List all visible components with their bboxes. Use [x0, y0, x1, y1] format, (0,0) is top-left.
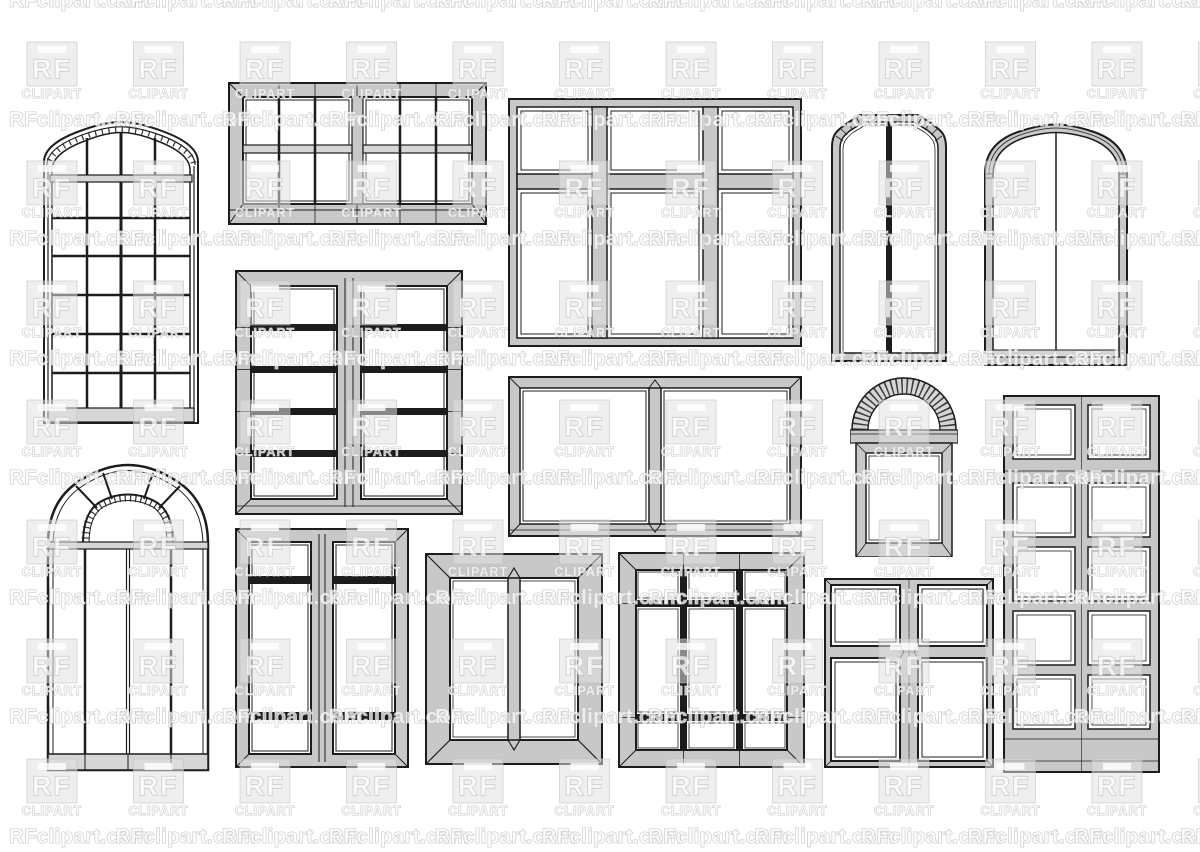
window-two-pane-picture-graphic	[508, 376, 802, 537]
logo-rf-text: RF	[352, 771, 392, 801]
logo-rf-text: RF	[458, 54, 498, 84]
logo-clipart-text: CLIPART	[235, 804, 295, 818]
logo-clipart-text: CLIPART	[1193, 565, 1200, 579]
logo-clipart-text: CLIPART	[1193, 804, 1200, 818]
logo-rf-text: RF	[458, 412, 498, 442]
logo-rf-text: RF	[458, 771, 498, 801]
logo-rf-text: RF	[565, 54, 605, 84]
window-chamfered-top-graphic	[830, 105, 948, 363]
logo-clipart-text: CLIPART	[128, 445, 188, 459]
rf-clipart-logo-watermark: RFCLIPART	[980, 42, 1040, 101]
logo-clipart-text: CLIPART	[874, 87, 934, 101]
window-thick-frame-two-pane-graphic	[425, 553, 603, 765]
logo-clipart-text: CLIPART	[661, 804, 721, 818]
site-watermark-text: RFclipart.com	[968, 825, 1109, 848]
logo-clipart-text: CLIPART	[22, 87, 82, 101]
logo-clipart-text: CLIPART	[980, 87, 1040, 101]
site-watermark-text: RFclipart.com	[1181, 108, 1200, 131]
logo-rf-text: RF	[1097, 54, 1137, 84]
logo-clipart-text: CLIPART	[554, 804, 614, 818]
rf-clipart-logo-watermark: RFCLIPART	[22, 42, 82, 101]
window-three-column-transom	[508, 98, 802, 352]
logo-clipart-text: CLIPART	[22, 804, 82, 818]
window-thick-frame-two-pane	[425, 553, 603, 770]
rf-clipart-logo-watermark: RFCLIPART	[554, 42, 614, 101]
site-watermark-text: RFclipart.com	[1181, 347, 1200, 370]
clipart-canvas: RFCLIPARTRFCLIPARTRFCLIPARTRFCLIPARTRFCL…	[0, 0, 1200, 852]
site-watermark-text: RFclipart.com	[1181, 466, 1200, 489]
rf-clipart-logo-watermark: RFCLIPART	[1193, 281, 1200, 340]
logo-rf-text: RF	[245, 54, 285, 84]
site-watermark-text: RFclipart.com	[435, 0, 576, 12]
site-watermark-text: RFclipart.com	[1074, 825, 1200, 848]
logo-clipart-text: CLIPART	[1193, 445, 1200, 459]
logo-clipart-text: CLIPART	[1193, 684, 1200, 698]
site-watermark-text: RFclipart.com	[1181, 227, 1200, 250]
site-watermark-text: RFclipart.com	[9, 0, 150, 12]
rf-clipart-logo-watermark: RFCLIPART	[767, 42, 827, 101]
site-watermark-text: RFclipart.com	[329, 0, 470, 12]
logo-rf-text: RF	[778, 771, 818, 801]
site-watermark-text: RFclipart.com	[1181, 0, 1200, 12]
window-arched-grid	[42, 118, 200, 430]
logo-rf-text: RF	[458, 293, 498, 323]
site-watermark-text: RFclipart.com	[542, 825, 683, 848]
window-two-pane-picture	[508, 376, 802, 542]
window-arched-two-pane	[983, 120, 1130, 372]
window-chamfered-top	[830, 105, 948, 368]
rf-clipart-logo-watermark: RFCLIPART	[128, 42, 188, 101]
site-watermark-text: RFclipart.com	[329, 227, 470, 250]
rf-clipart-logo-watermark: RFCLIPART	[1193, 759, 1200, 818]
site-watermark-text: RFclipart.com	[1181, 586, 1200, 609]
window-double-casement-five-pane	[235, 270, 463, 520]
rf-clipart-logo-watermark: RFCLIPART	[874, 42, 934, 101]
window-tall-ten-pane	[1003, 395, 1160, 778]
logo-rf-text: RF	[245, 771, 285, 801]
site-watermark-text: RFclipart.com	[9, 825, 150, 848]
window-three-column-transom-graphic	[508, 98, 802, 347]
window-four-pane-cross-graphic	[824, 578, 994, 768]
rf-clipart-logo-watermark: RFCLIPART	[1193, 42, 1200, 101]
logo-clipart-text: CLIPART	[1193, 326, 1200, 340]
window-double-casement-five-pane-graphic	[235, 270, 463, 515]
logo-rf-text: RF	[352, 54, 392, 84]
site-watermark-text: RFclipart.com	[861, 0, 1002, 12]
window-double-sash-six-pane-graphic	[228, 82, 487, 225]
logo-rf-text: RF	[139, 54, 179, 84]
site-watermark-text: RFclipart.com	[435, 825, 576, 848]
rf-clipart-logo-watermark: RFCLIPART	[1087, 42, 1147, 101]
window-arched-fanlight-graphic	[45, 462, 212, 772]
logo-clipart-text: CLIPART	[128, 87, 188, 101]
logo-rf-text: RF	[671, 771, 711, 801]
window-four-pane-cross	[824, 578, 994, 773]
rf-clipart-logo-watermark: RFCLIPART	[1193, 520, 1200, 579]
site-watermark-text: RFclipart.com	[648, 0, 789, 12]
window-tall-ten-pane-graphic	[1003, 395, 1160, 773]
logo-clipart-text: CLIPART	[1193, 206, 1200, 220]
logo-rf-text: RF	[565, 771, 605, 801]
logo-rf-text: RF	[32, 54, 72, 84]
logo-rf-text: RF	[991, 54, 1031, 84]
site-watermark-text: RFclipart.com	[116, 825, 257, 848]
logo-rf-text: RF	[884, 54, 924, 84]
logo-clipart-text: CLIPART	[1087, 87, 1147, 101]
site-watermark-text: RFclipart.com	[222, 0, 363, 12]
site-watermark-text: RFclipart.com	[222, 227, 363, 250]
rf-clipart-logo-watermark: RFCLIPART	[1193, 161, 1200, 220]
site-watermark-text: RFclipart.com	[329, 825, 470, 848]
window-double-sash-six-pane	[228, 82, 487, 230]
logo-rf-text: RF	[884, 771, 924, 801]
window-arched-grid-graphic	[42, 118, 200, 425]
window-double-casement-three-pane-graphic	[235, 528, 409, 768]
window-brick-arch-graphic	[850, 375, 958, 557]
site-watermark-text: RFclipart.com	[755, 825, 896, 848]
rf-clipart-logo-watermark: RFCLIPART	[661, 42, 721, 101]
site-watermark-text: RFclipart.com	[1074, 0, 1200, 12]
logo-clipart-text: CLIPART	[767, 804, 827, 818]
window-nine-pane	[618, 552, 805, 773]
site-watermark-text: RFclipart.com	[1181, 705, 1200, 728]
logo-clipart-text: CLIPART	[980, 804, 1040, 818]
logo-clipart-text: CLIPART	[128, 804, 188, 818]
logo-rf-text: RF	[778, 54, 818, 84]
site-watermark-text: RFclipart.com	[755, 0, 896, 12]
site-watermark-text: RFclipart.com	[116, 0, 257, 12]
rf-clipart-logo-watermark: RFCLIPART	[1193, 400, 1200, 459]
logo-clipart-text: CLIPART	[22, 445, 82, 459]
logo-clipart-text: CLIPART	[874, 565, 934, 579]
rf-clipart-logo-watermark: RFCLIPART	[1193, 639, 1200, 698]
window-arched-two-pane-graphic	[983, 120, 1130, 367]
site-watermark-text: RFclipart.com	[968, 0, 1109, 12]
logo-rf-text: RF	[671, 54, 711, 84]
logo-clipart-text: CLIPART	[874, 804, 934, 818]
window-brick-arch	[850, 375, 958, 562]
window-nine-pane-graphic	[618, 552, 805, 768]
logo-clipart-text: CLIPART	[448, 804, 508, 818]
site-watermark-text: RFclipart.com	[648, 825, 789, 848]
site-watermark-text: RFclipart.com	[542, 0, 683, 12]
site-watermark-text: RFclipart.com	[1181, 825, 1200, 848]
logo-clipart-text: CLIPART	[341, 804, 401, 818]
logo-clipart-text: CLIPART	[1193, 87, 1200, 101]
logo-clipart-text: CLIPART	[1087, 804, 1147, 818]
window-arched-fanlight	[45, 462, 212, 777]
site-watermark-text: RFclipart.com	[861, 825, 1002, 848]
window-double-casement-three-pane	[235, 528, 409, 773]
site-watermark-text: RFclipart.com	[222, 825, 363, 848]
